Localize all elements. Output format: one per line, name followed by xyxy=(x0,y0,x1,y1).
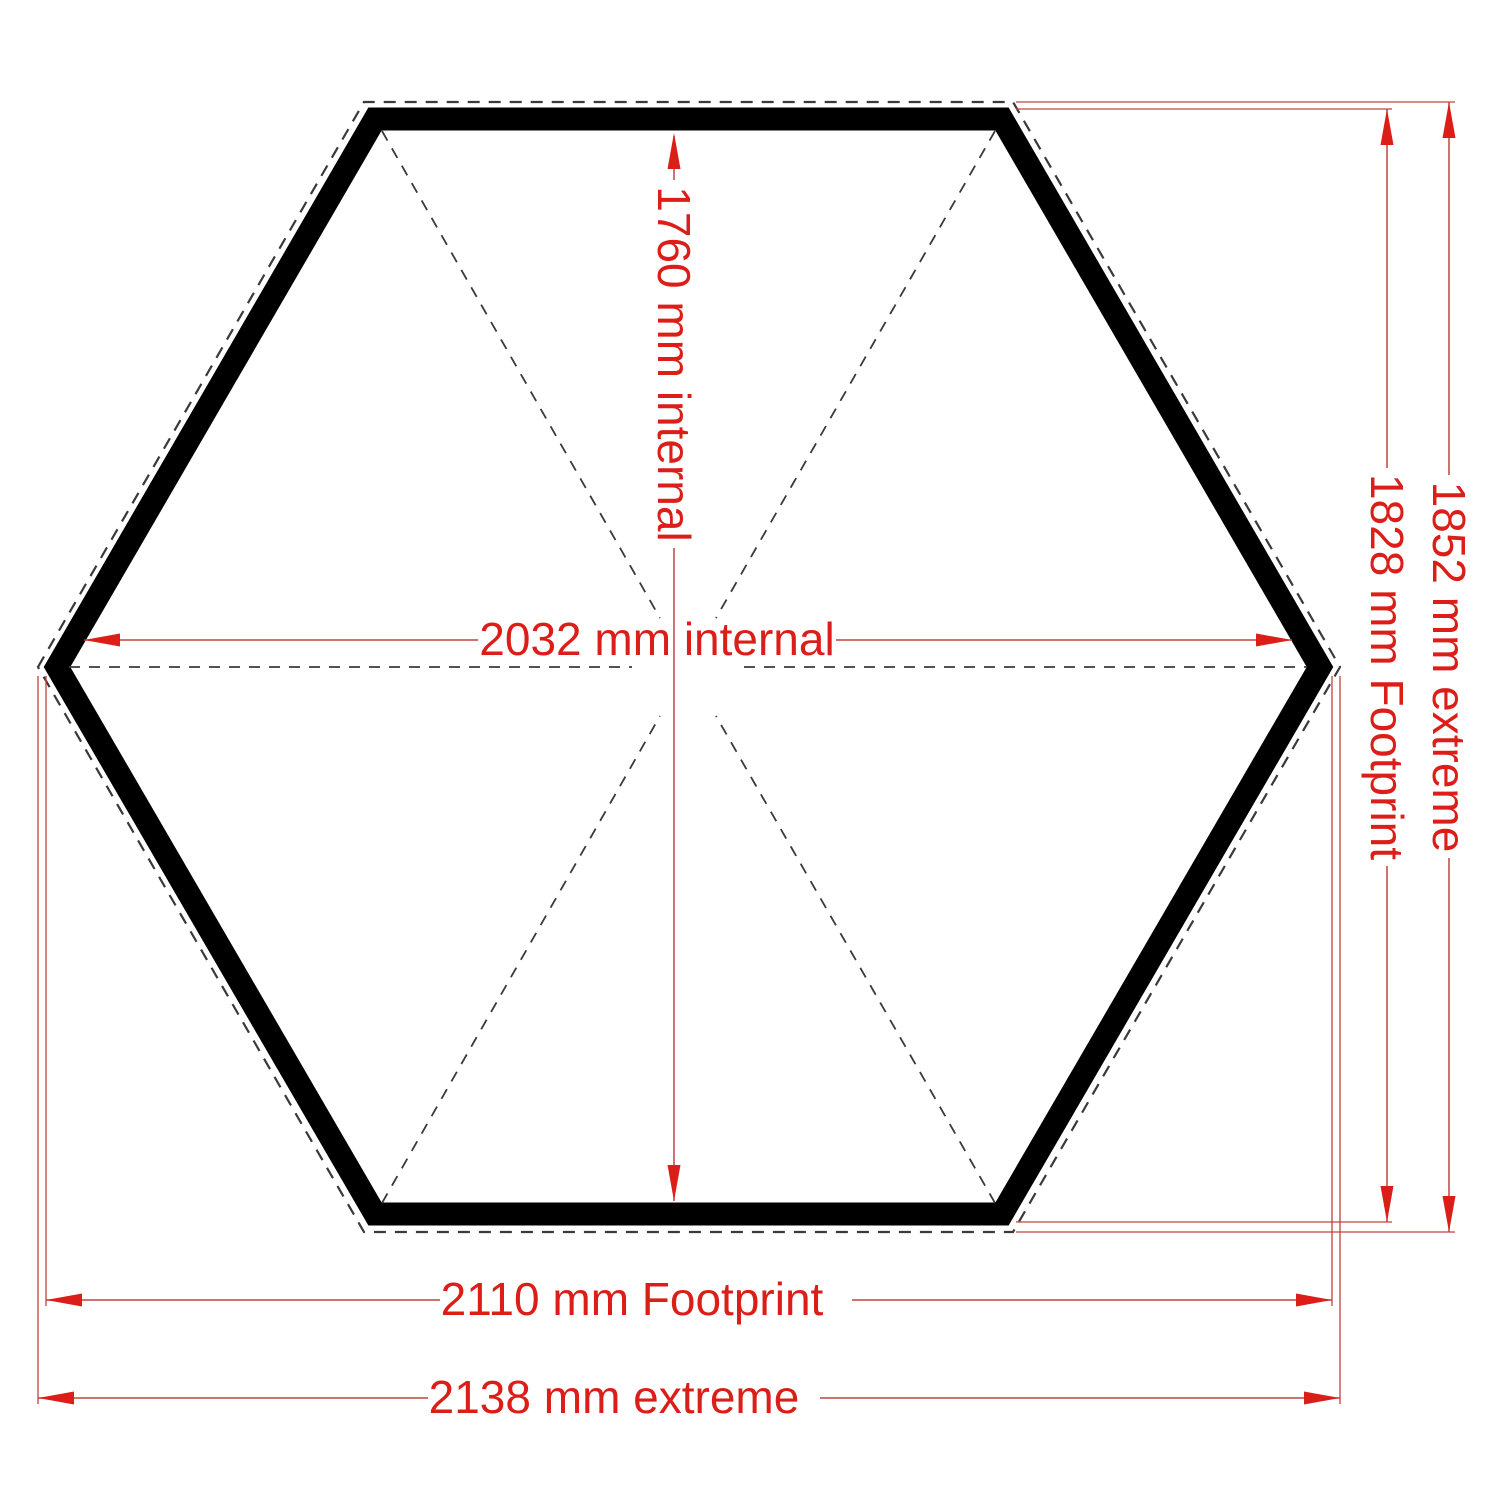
arrow-down-icon xyxy=(1381,1186,1394,1222)
arrow-up-icon xyxy=(668,133,681,169)
floor-plan-drawing: 1760 mm internal 2032 mm internal 1828 m… xyxy=(0,0,1500,1500)
arrow-up-icon xyxy=(1443,102,1456,138)
arrow-right-icon xyxy=(1304,1392,1340,1405)
ridge-line-top-left xyxy=(382,131,660,618)
ridge-line-top-right xyxy=(716,131,995,618)
dim-internal-depth: 1760 mm internal xyxy=(648,133,700,1201)
dim-footprint-width-label: 2110 mm Footprint xyxy=(441,1273,824,1325)
dim-extreme-height-label: 1852 mm extreme xyxy=(1423,482,1475,853)
ridge-line-bottom-left xyxy=(382,716,660,1203)
drawing-sheet: 1760 mm internal 2032 mm internal 1828 m… xyxy=(0,0,1500,1500)
ridge-line-bottom-right xyxy=(716,716,995,1203)
dim-extreme-width-label: 2138 mm extreme xyxy=(429,1371,800,1423)
arrow-left-icon xyxy=(84,634,120,647)
arrow-left-icon xyxy=(38,1392,74,1405)
arrow-right-icon xyxy=(1296,1294,1332,1307)
dim-internal-width: 2032 mm internal xyxy=(84,613,1292,665)
arrow-down-icon xyxy=(668,1165,681,1201)
arrow-up-icon xyxy=(1381,109,1394,145)
dim-footprint-height-label: 1828 mm Footprint xyxy=(1361,474,1413,860)
dim-internal-depth-label: 1760 mm internal xyxy=(648,186,700,541)
arrow-left-icon xyxy=(46,1294,82,1307)
dim-footprint-height: 1828 mm Footprint xyxy=(1016,109,1413,1222)
dim-internal-width-label: 2032 mm internal xyxy=(479,613,834,665)
arrow-down-icon xyxy=(1443,1196,1456,1232)
arrow-right-icon xyxy=(1256,634,1292,647)
